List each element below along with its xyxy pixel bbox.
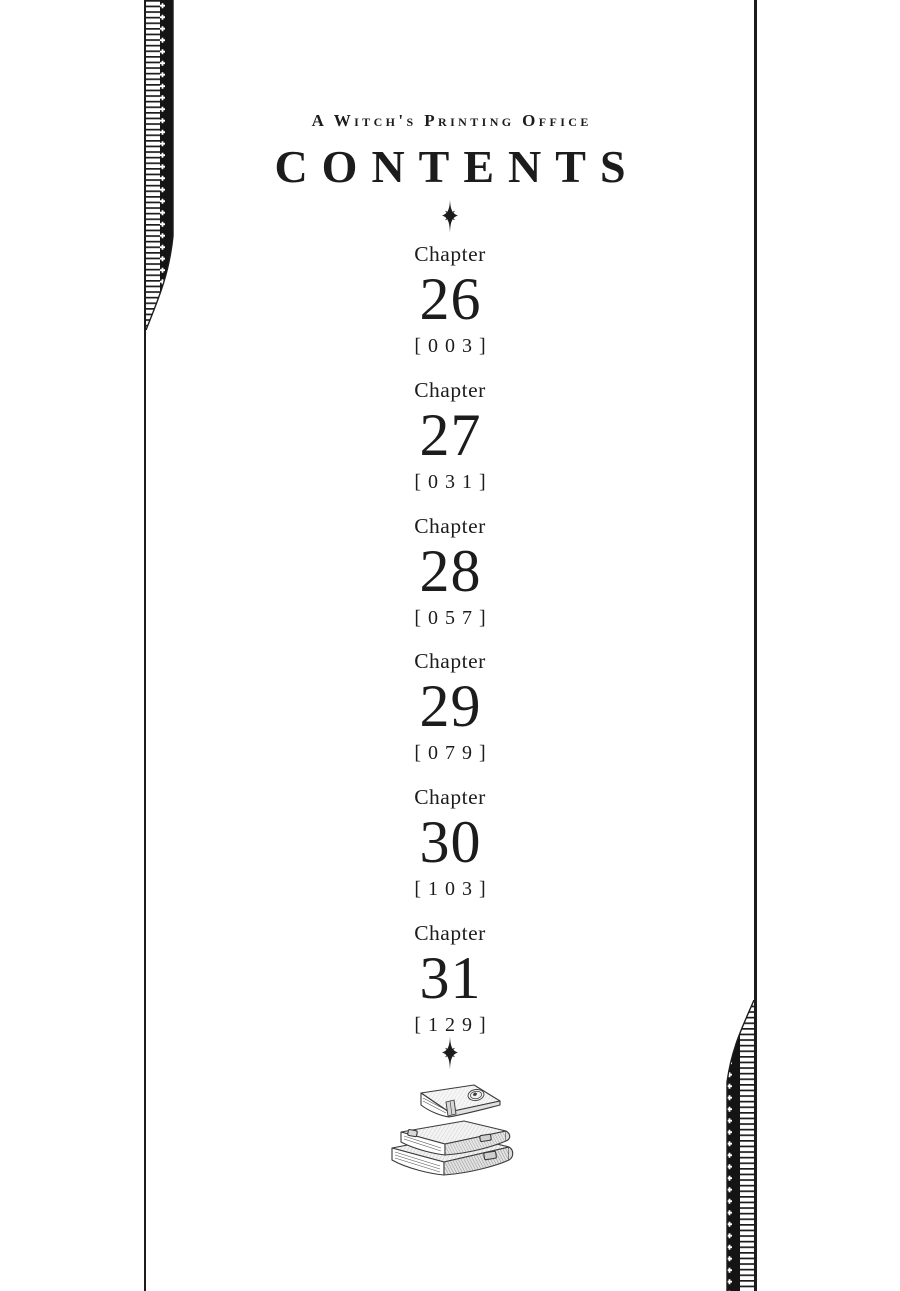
chapter-number: 27 <box>0 404 900 466</box>
chapter-entry-29: Chapter 29 [079] <box>0 649 900 785</box>
series-title: A Witch's Printing Office <box>0 111 900 131</box>
chapter-entry-30: Chapter 30 [103] <box>0 785 900 921</box>
chapter-page-number: [079] <box>0 741 900 765</box>
chapter-label: Chapter <box>0 242 900 266</box>
chapter-entry-28: Chapter 28 [057] <box>0 514 900 650</box>
chapter-number: 30 <box>0 811 900 873</box>
chapter-label: Chapter <box>0 514 900 538</box>
sparkle-icon <box>0 199 900 233</box>
chapter-page-number: [057] <box>0 606 900 630</box>
chapter-number: 26 <box>0 268 900 330</box>
page-title: CONTENTS <box>0 140 900 194</box>
stacked-books-icon <box>388 1072 516 1184</box>
chapter-number: 31 <box>0 947 900 1009</box>
chapter-page-number: [031] <box>0 470 900 494</box>
chapter-entry-27: Chapter 27 [031] <box>0 378 900 514</box>
chapter-label: Chapter <box>0 649 900 673</box>
contents-page: A Witch's Printing Office CONTENTS Chapt… <box>0 0 900 1291</box>
chapter-label: Chapter <box>0 378 900 402</box>
chapter-label: Chapter <box>0 921 900 945</box>
chapter-entry-26: Chapter 26 [003] <box>0 242 900 378</box>
chapter-list: Chapter 26 [003] Chapter 27 [031] Chapte… <box>0 242 900 1057</box>
chapter-page-number: [103] <box>0 877 900 901</box>
chapter-number: 29 <box>0 675 900 737</box>
chapter-number: 28 <box>0 540 900 602</box>
sparkle-icon <box>0 1036 900 1070</box>
chapter-label: Chapter <box>0 785 900 809</box>
chapter-page-number: [003] <box>0 334 900 358</box>
chapter-page-number: [129] <box>0 1013 900 1037</box>
